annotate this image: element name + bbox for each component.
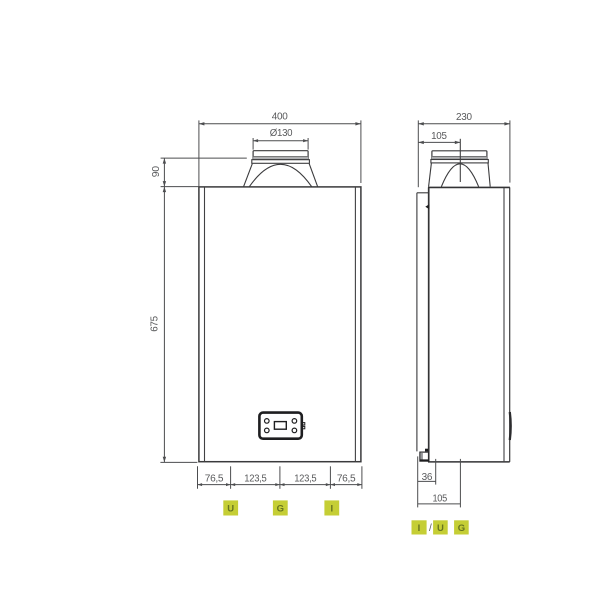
svg-text:230: 230 bbox=[456, 112, 472, 123]
svg-text:G: G bbox=[277, 504, 284, 515]
svg-text:105: 105 bbox=[432, 494, 447, 505]
svg-text:123,5: 123,5 bbox=[244, 473, 267, 484]
svg-text:G: G bbox=[458, 523, 465, 534]
svg-text:76,5: 76,5 bbox=[205, 473, 224, 484]
svg-text:76,5: 76,5 bbox=[337, 473, 356, 484]
svg-text:400: 400 bbox=[272, 112, 288, 123]
svg-text:675: 675 bbox=[150, 316, 161, 332]
svg-text:I: I bbox=[330, 504, 333, 515]
svg-text:123,5: 123,5 bbox=[294, 473, 317, 484]
svg-text:36: 36 bbox=[422, 472, 433, 483]
svg-text:Ø130: Ø130 bbox=[270, 128, 293, 139]
svg-text:U: U bbox=[437, 523, 444, 534]
svg-text:90: 90 bbox=[151, 166, 162, 178]
svg-text:U: U bbox=[227, 504, 234, 515]
svg-text:105: 105 bbox=[431, 131, 447, 142]
svg-text:I: I bbox=[418, 523, 421, 534]
